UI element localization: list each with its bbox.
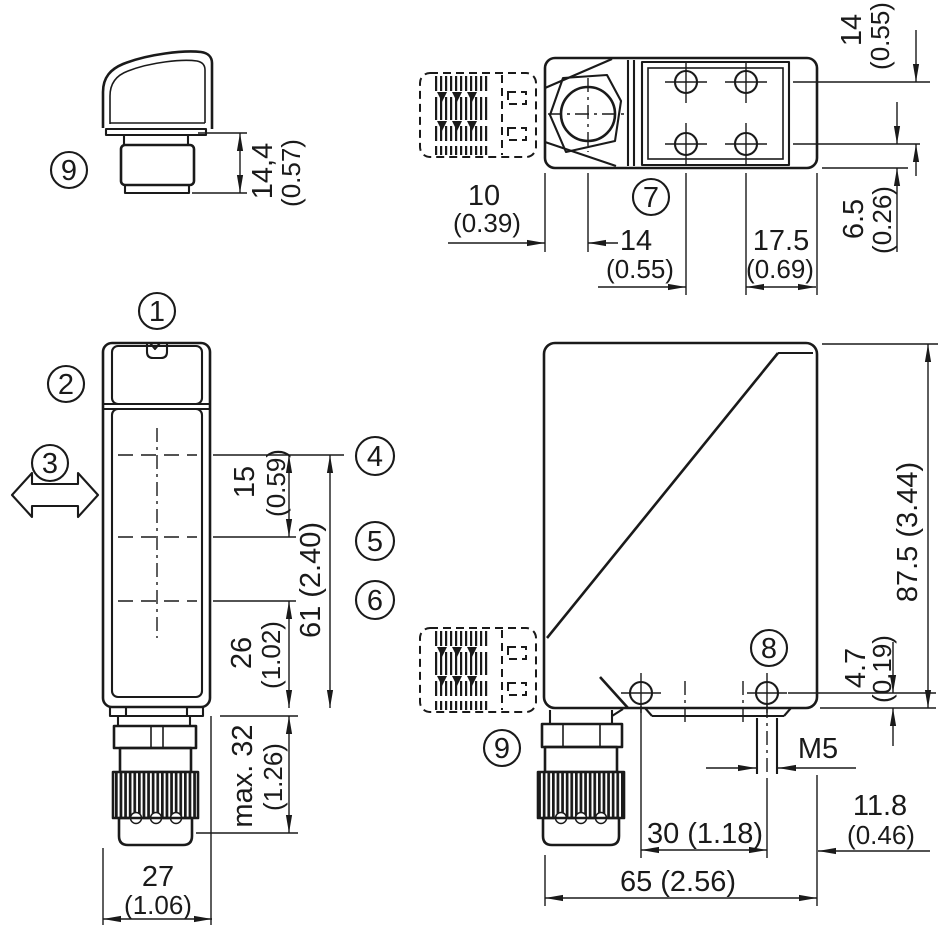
dim-top-edge-mm: 17.5 — [753, 225, 809, 257]
dim-front-width-in: (1.06) — [124, 890, 192, 920]
dim-front-axis-gap-mm: 15 — [229, 466, 261, 498]
svg-text:1: 1 — [149, 296, 165, 328]
dim-front-width-mm: 27 — [142, 861, 174, 893]
dim-front-lower-axis-mm: 26 — [226, 637, 258, 669]
dim-front-connector-len-in: (1.26) — [258, 743, 288, 811]
svg-text:5: 5 — [367, 526, 383, 558]
dim-top-offset-in: (0.39) — [453, 208, 521, 238]
dim-top-edge-in: (0.69) — [746, 254, 814, 284]
drawing-canvas: 14,4 (0.57) 9 — [0, 0, 940, 928]
dim-side-thread-edge-in: (0.46) — [847, 820, 915, 850]
dim-side-depth: 65 (2.56) — [620, 866, 736, 898]
dim-side-height: 87.5 (3.44) — [892, 462, 924, 602]
svg-text:4: 4 — [367, 441, 383, 473]
dim-top-row-edge-mm: 6.5 — [838, 199, 870, 239]
svg-text:2: 2 — [58, 369, 74, 401]
dim-top-hole-pitch-in: (0.55) — [606, 254, 674, 284]
dim-side-hole-pitch: 30 (1.18) — [647, 818, 763, 850]
dim-front-optics-span: 61 (2.40) — [295, 522, 327, 638]
svg-text:6: 6 — [367, 585, 383, 617]
dim-side-hole-edge-in: (0.19) — [867, 635, 897, 703]
dim-side-thread: M5 — [798, 733, 838, 765]
svg-text:9: 9 — [494, 733, 510, 765]
svg-text:8: 8 — [761, 633, 777, 665]
dim-top-row-edge-in: (0.26) — [867, 186, 897, 254]
dim-side-thread-edge-mm: 11.8 — [853, 790, 907, 822]
dim-front-axis-gap-in: (0.59) — [261, 449, 291, 517]
svg-text:9: 9 — [61, 155, 77, 187]
svg-text:7: 7 — [643, 182, 659, 214]
dim-top-row-pitch-in: (0.55) — [865, 2, 895, 70]
dim-front-connector-len-mm: max. 32 — [227, 724, 259, 827]
svg-text:3: 3 — [42, 448, 58, 480]
dim-top-row-pitch-mm: 14 — [836, 14, 868, 46]
dim-top-hole-pitch-mm: 14 — [620, 225, 652, 257]
dimension-drawing: 14,4 (0.57) 9 — [0, 0, 940, 928]
dim-front-lower-axis-in: (1.02) — [256, 621, 286, 689]
dim-connector-height-in: (0.57) — [276, 139, 306, 207]
dim-connector-height-mm: 14,4 — [247, 143, 279, 199]
